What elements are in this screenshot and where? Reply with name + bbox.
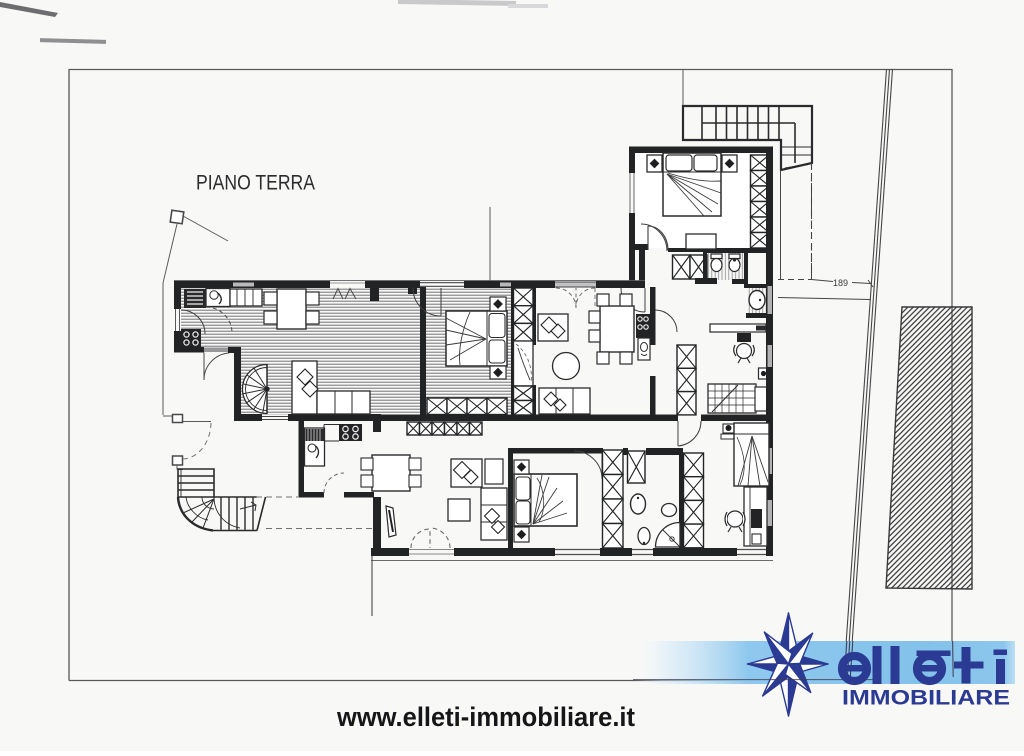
svg-text:IMMOBILIARE: IMMOBILIARE	[842, 686, 1010, 710]
svg-text:189: 189	[833, 278, 848, 288]
svg-text:PIANO TERRA: PIANO TERRA	[196, 172, 315, 195]
svg-text:www.elleti-immobiliare.it: www.elleti-immobiliare.it	[336, 702, 635, 732]
